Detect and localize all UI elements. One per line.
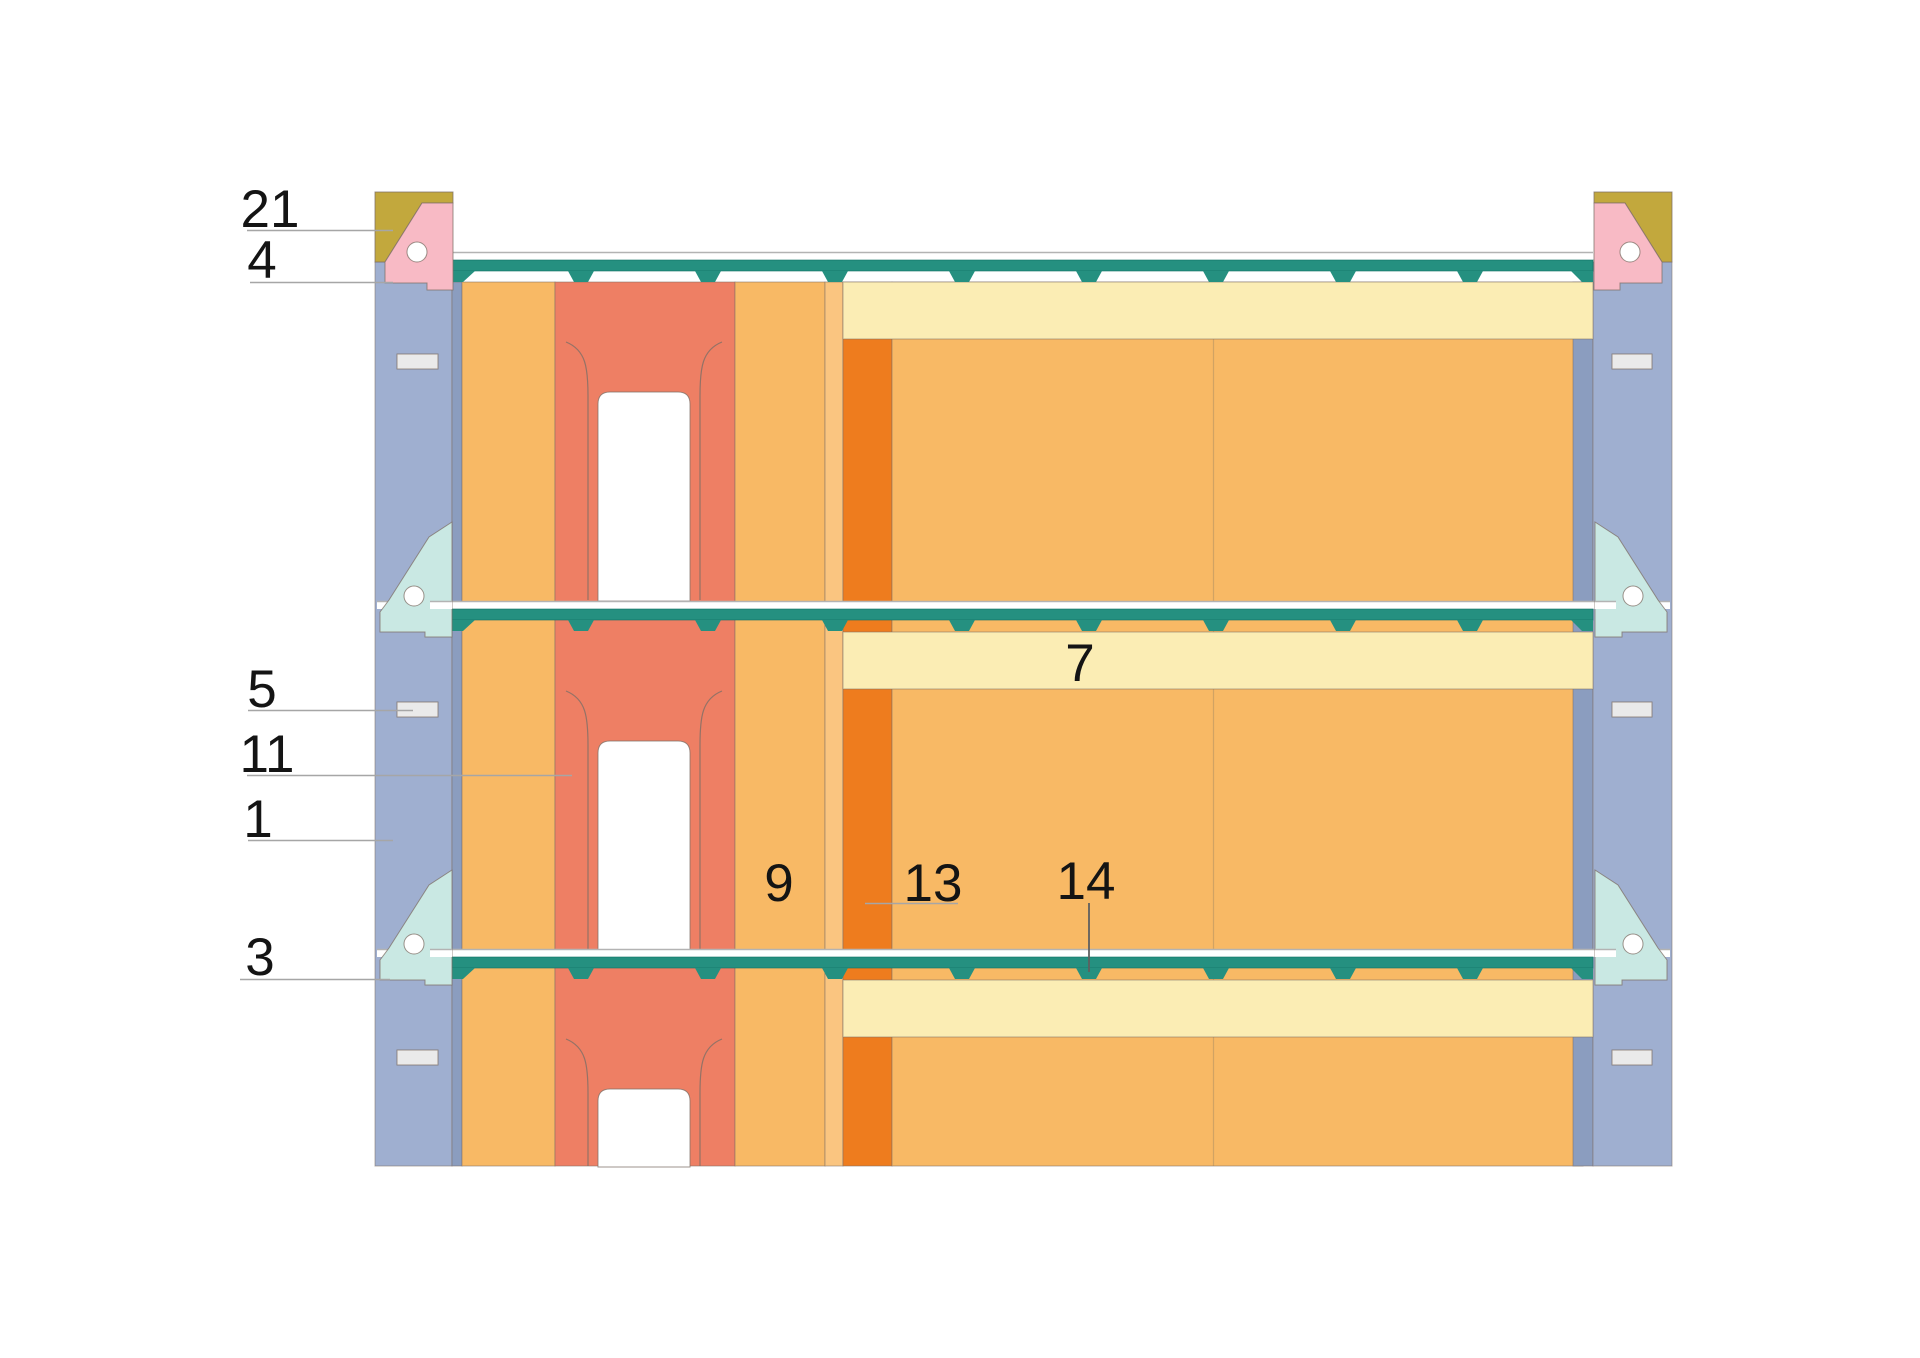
- block-cavity-1: [598, 392, 690, 601]
- diagram-canvas: 21 4 5 11 1 3 7 9 13 14: [0, 0, 1920, 1358]
- callout-3: 3: [245, 928, 274, 987]
- fixing-plug-right-3: [1612, 1050, 1652, 1065]
- callout-14: 14: [1057, 852, 1116, 911]
- infill-layer-inner: [735, 282, 825, 1166]
- edge-board-2: [843, 632, 1593, 689]
- support-profile-2: [452, 609, 1593, 620]
- callout-1: 1: [243, 790, 272, 849]
- callout-9: 9: [764, 854, 793, 913]
- anchor-bolt-left-3: [404, 934, 424, 954]
- adhesive-layer-left: [452, 282, 462, 1166]
- anchor-bolt-right-2: [1623, 586, 1643, 606]
- fixing-plug-right-1: [1612, 354, 1652, 369]
- connector-bolt-right: [1620, 242, 1640, 262]
- support-profile-1: [452, 260, 1593, 271]
- fixing-plug-left-1: [397, 354, 438, 369]
- connector-bolt-left: [407, 242, 427, 262]
- block-cavity-2: [598, 741, 690, 950]
- support-profile-3: [452, 957, 1593, 968]
- callout-5: 5: [247, 660, 276, 719]
- callout-7: 7: [1065, 634, 1094, 693]
- edge-board-1: [843, 282, 1593, 339]
- callout-11: 11: [239, 725, 294, 784]
- anchor-bolt-left-2: [404, 586, 424, 606]
- fixing-plug-left-3: [397, 1050, 438, 1065]
- slab-profile-1: [452, 252, 1593, 282]
- profile-ribs-1: [452, 271, 1593, 282]
- callout-4: 4: [247, 231, 276, 290]
- levelling-layer: [825, 282, 843, 1166]
- anchor-bolt-right-3: [1623, 934, 1643, 954]
- edge-board-3: [843, 980, 1593, 1037]
- callout-13: 13: [904, 854, 963, 913]
- block-cavity-3: [598, 1089, 690, 1167]
- wall-section-diagram: 21 4 5 11 1 3 7 9 13 14: [0, 0, 1920, 1358]
- fixing-plug-right-2: [1612, 702, 1652, 717]
- plaster-layer-left: [462, 282, 555, 1166]
- fixing-plug-left-2: [397, 702, 438, 717]
